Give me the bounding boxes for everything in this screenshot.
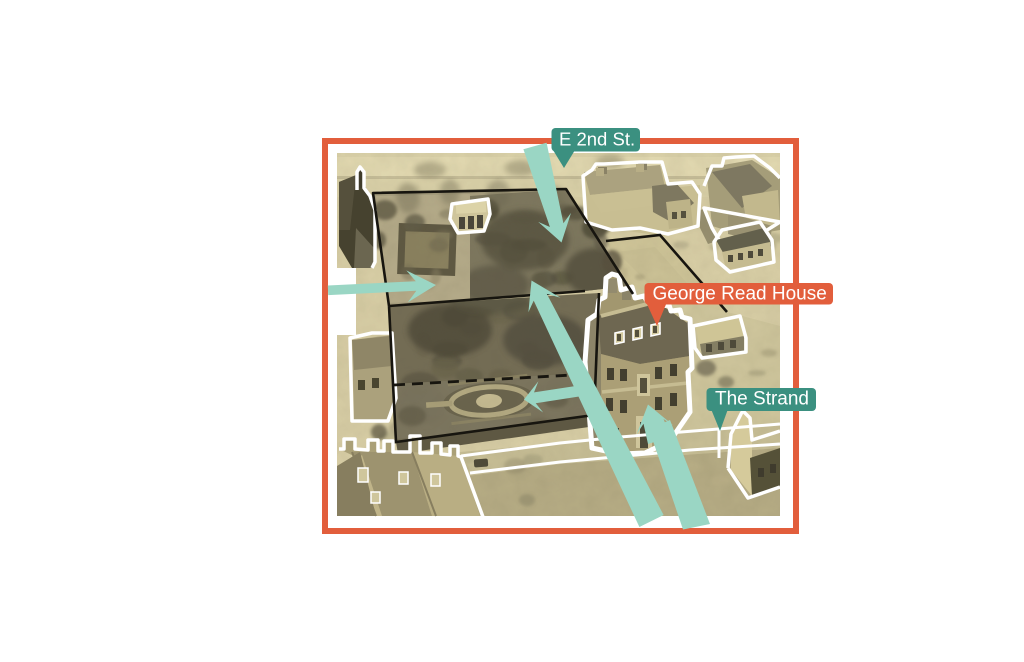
svg-text:The Strand: The Strand [715, 389, 809, 410]
svg-text:E 2nd St.: E 2nd St. [559, 129, 635, 150]
svg-text:George Read House: George Read House [653, 284, 827, 305]
